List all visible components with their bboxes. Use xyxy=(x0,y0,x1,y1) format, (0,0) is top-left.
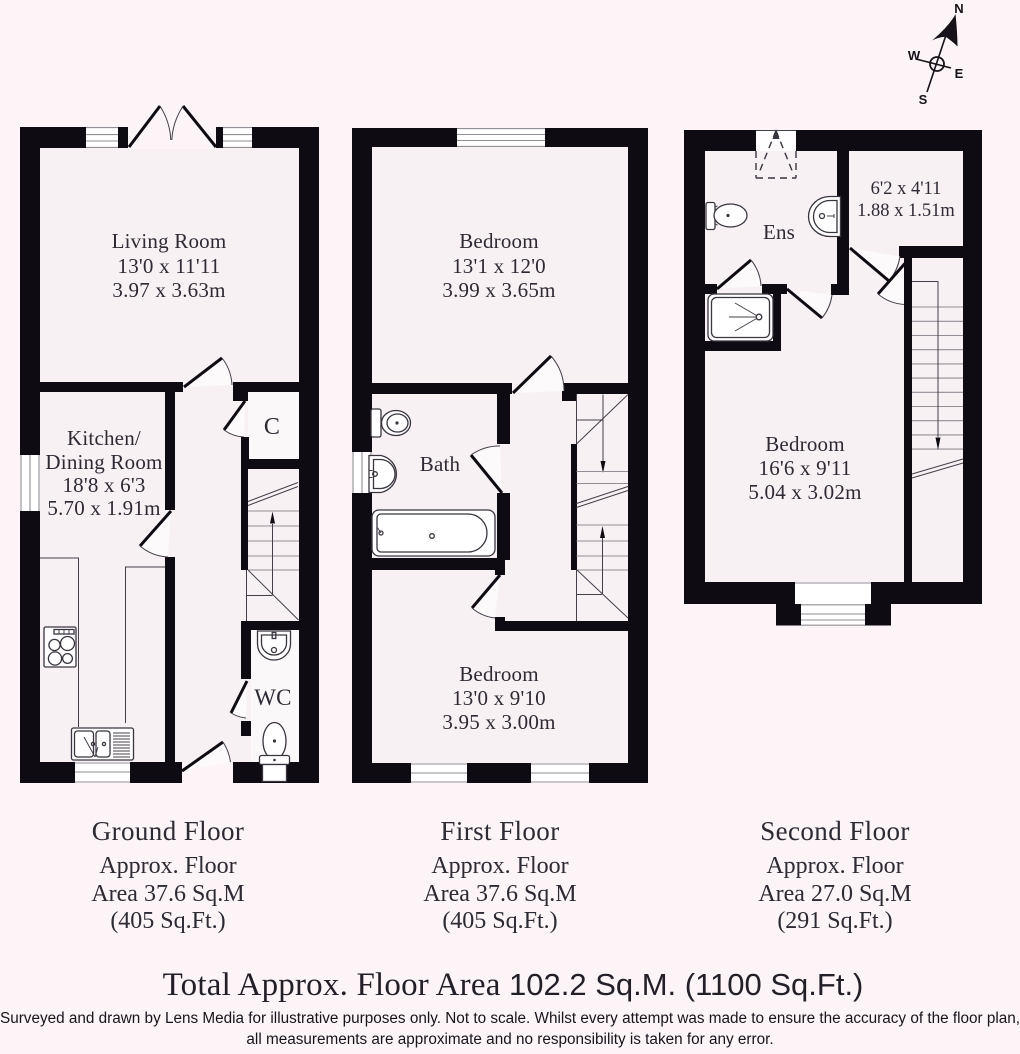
svg-text:Total Approx. Floor Area 102.2: Total Approx. Floor Area 102.2 Sq.M. (11… xyxy=(163,967,864,1003)
svg-text:WC: WC xyxy=(254,685,291,710)
svg-text:Bedroom: Bedroom xyxy=(765,432,845,456)
svg-text:Ground Floor: Ground Floor xyxy=(92,816,245,846)
svg-text:First Floor: First Floor xyxy=(440,816,559,846)
svg-text:Area 37.6 Sq.M: Area 37.6 Sq.M xyxy=(423,881,576,907)
svg-text:S: S xyxy=(919,92,928,107)
svg-text:16'6 x 9'11: 16'6 x 9'11 xyxy=(759,456,852,480)
svg-text:13'1 x 12'0: 13'1 x 12'0 xyxy=(452,254,546,278)
svg-text:5.70 x 1.91m: 5.70 x 1.91m xyxy=(47,496,160,520)
svg-text:Approx. Floor: Approx. Floor xyxy=(431,853,568,879)
svg-text:all measurements are approxima: all measurements are approximate and no … xyxy=(246,1031,773,1048)
svg-text:Bedroom: Bedroom xyxy=(459,662,539,686)
svg-text:Area 27.0 Sq.M: Area 27.0 Sq.M xyxy=(758,881,911,907)
svg-text:Area 37.6 Sq.M: Area 37.6 Sq.M xyxy=(91,881,244,907)
svg-text:5.04 x 3.02m: 5.04 x 3.02m xyxy=(748,480,861,504)
svg-text:Living Room: Living Room xyxy=(112,229,227,253)
svg-text:Bedroom: Bedroom xyxy=(459,229,539,253)
svg-text:N: N xyxy=(954,1,963,16)
svg-text:3.95 x 3.00m: 3.95 x 3.00m xyxy=(442,710,555,734)
svg-text:3.97 x 3.63m: 3.97 x 3.63m xyxy=(112,278,225,302)
svg-text:Bath: Bath xyxy=(420,452,461,476)
svg-text:Ens: Ens xyxy=(763,220,795,244)
svg-text:(405 Sq.Ft.): (405 Sq.Ft.) xyxy=(110,908,225,934)
svg-text:Approx. Floor: Approx. Floor xyxy=(766,853,903,879)
svg-text:Dining Room: Dining Room xyxy=(45,450,162,474)
svg-text:13'0 x 9'10: 13'0 x 9'10 xyxy=(452,686,546,710)
svg-text:Surveyed and drawn by Lens Med: Surveyed and drawn by Lens Media for ill… xyxy=(0,1010,1020,1027)
svg-text:6'2 x 4'11: 6'2 x 4'11 xyxy=(871,179,942,199)
svg-text:13'0 x 11'11: 13'0 x 11'11 xyxy=(118,254,221,278)
svg-text:W: W xyxy=(908,48,921,63)
svg-text:Kitchen/: Kitchen/ xyxy=(67,426,141,450)
svg-text:E: E xyxy=(955,66,964,81)
svg-text:18'8 x 6'3: 18'8 x 6'3 xyxy=(62,473,145,497)
svg-text:(291 Sq.Ft.): (291 Sq.Ft.) xyxy=(777,908,892,934)
svg-text:1.88 x 1.51m: 1.88 x 1.51m xyxy=(857,201,955,221)
svg-text:Approx. Floor: Approx. Floor xyxy=(99,853,236,879)
svg-text:C: C xyxy=(264,414,280,440)
svg-text:Second Floor: Second Floor xyxy=(760,816,910,846)
svg-text:3.99 x 3.65m: 3.99 x 3.65m xyxy=(442,278,555,302)
svg-text:(405 Sq.Ft.): (405 Sq.Ft.) xyxy=(442,908,557,934)
